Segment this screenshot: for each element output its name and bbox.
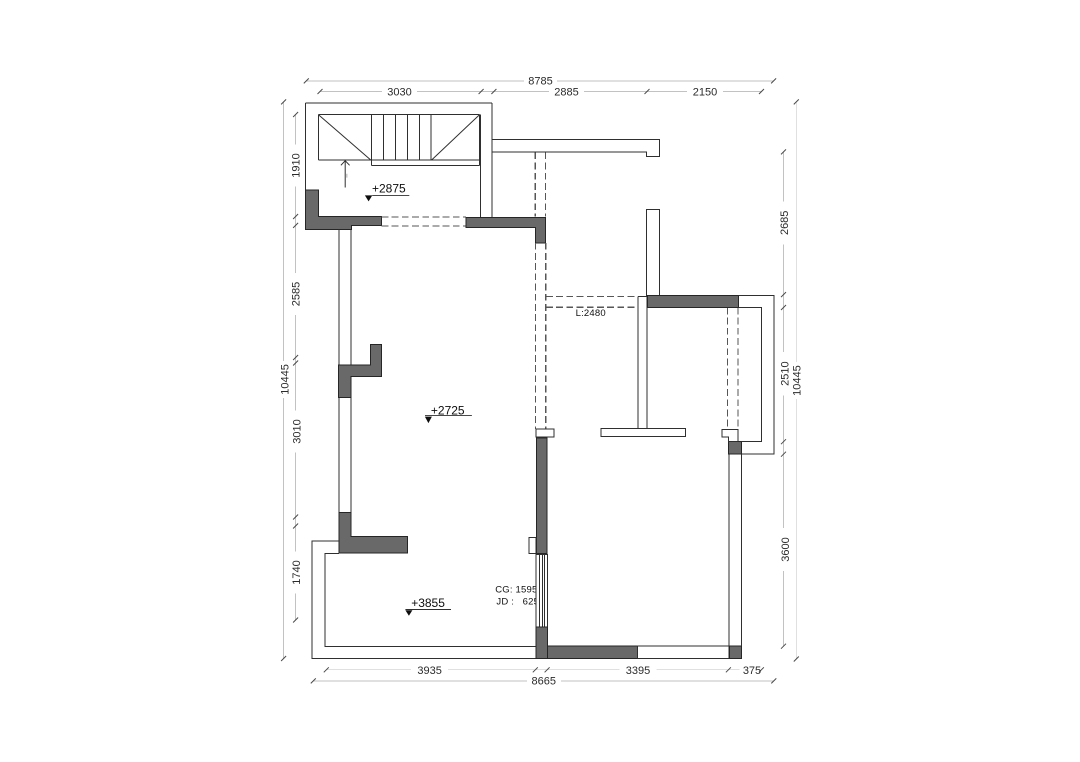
svg-text:1910: 1910 xyxy=(290,153,302,177)
svg-text:+2875: +2875 xyxy=(372,182,406,196)
svg-text:3010: 3010 xyxy=(291,419,303,443)
svg-text:3030: 3030 xyxy=(387,87,411,99)
svg-text:2685: 2685 xyxy=(779,211,791,235)
svg-text:+3855: +3855 xyxy=(411,596,445,610)
svg-text:CG: 1595: CG: 1595 xyxy=(495,585,537,596)
svg-text:2885: 2885 xyxy=(554,87,578,99)
svg-text:2585: 2585 xyxy=(290,282,302,306)
svg-text:8665: 8665 xyxy=(532,676,556,688)
svg-text:3935: 3935 xyxy=(417,665,441,677)
svg-text:L:2480: L:2480 xyxy=(576,308,606,319)
svg-text:375: 375 xyxy=(743,665,761,677)
svg-text:1740: 1740 xyxy=(291,560,303,584)
svg-text:JD : 625: JD : 625 xyxy=(496,597,539,608)
svg-text:3600: 3600 xyxy=(780,537,792,561)
svg-text:10445: 10445 xyxy=(280,364,292,395)
svg-text:8785: 8785 xyxy=(528,76,552,88)
svg-text:2510: 2510 xyxy=(780,361,792,385)
svg-text:2150: 2150 xyxy=(693,87,717,99)
svg-text:10445: 10445 xyxy=(792,365,804,396)
svg-text:3395: 3395 xyxy=(626,665,650,677)
